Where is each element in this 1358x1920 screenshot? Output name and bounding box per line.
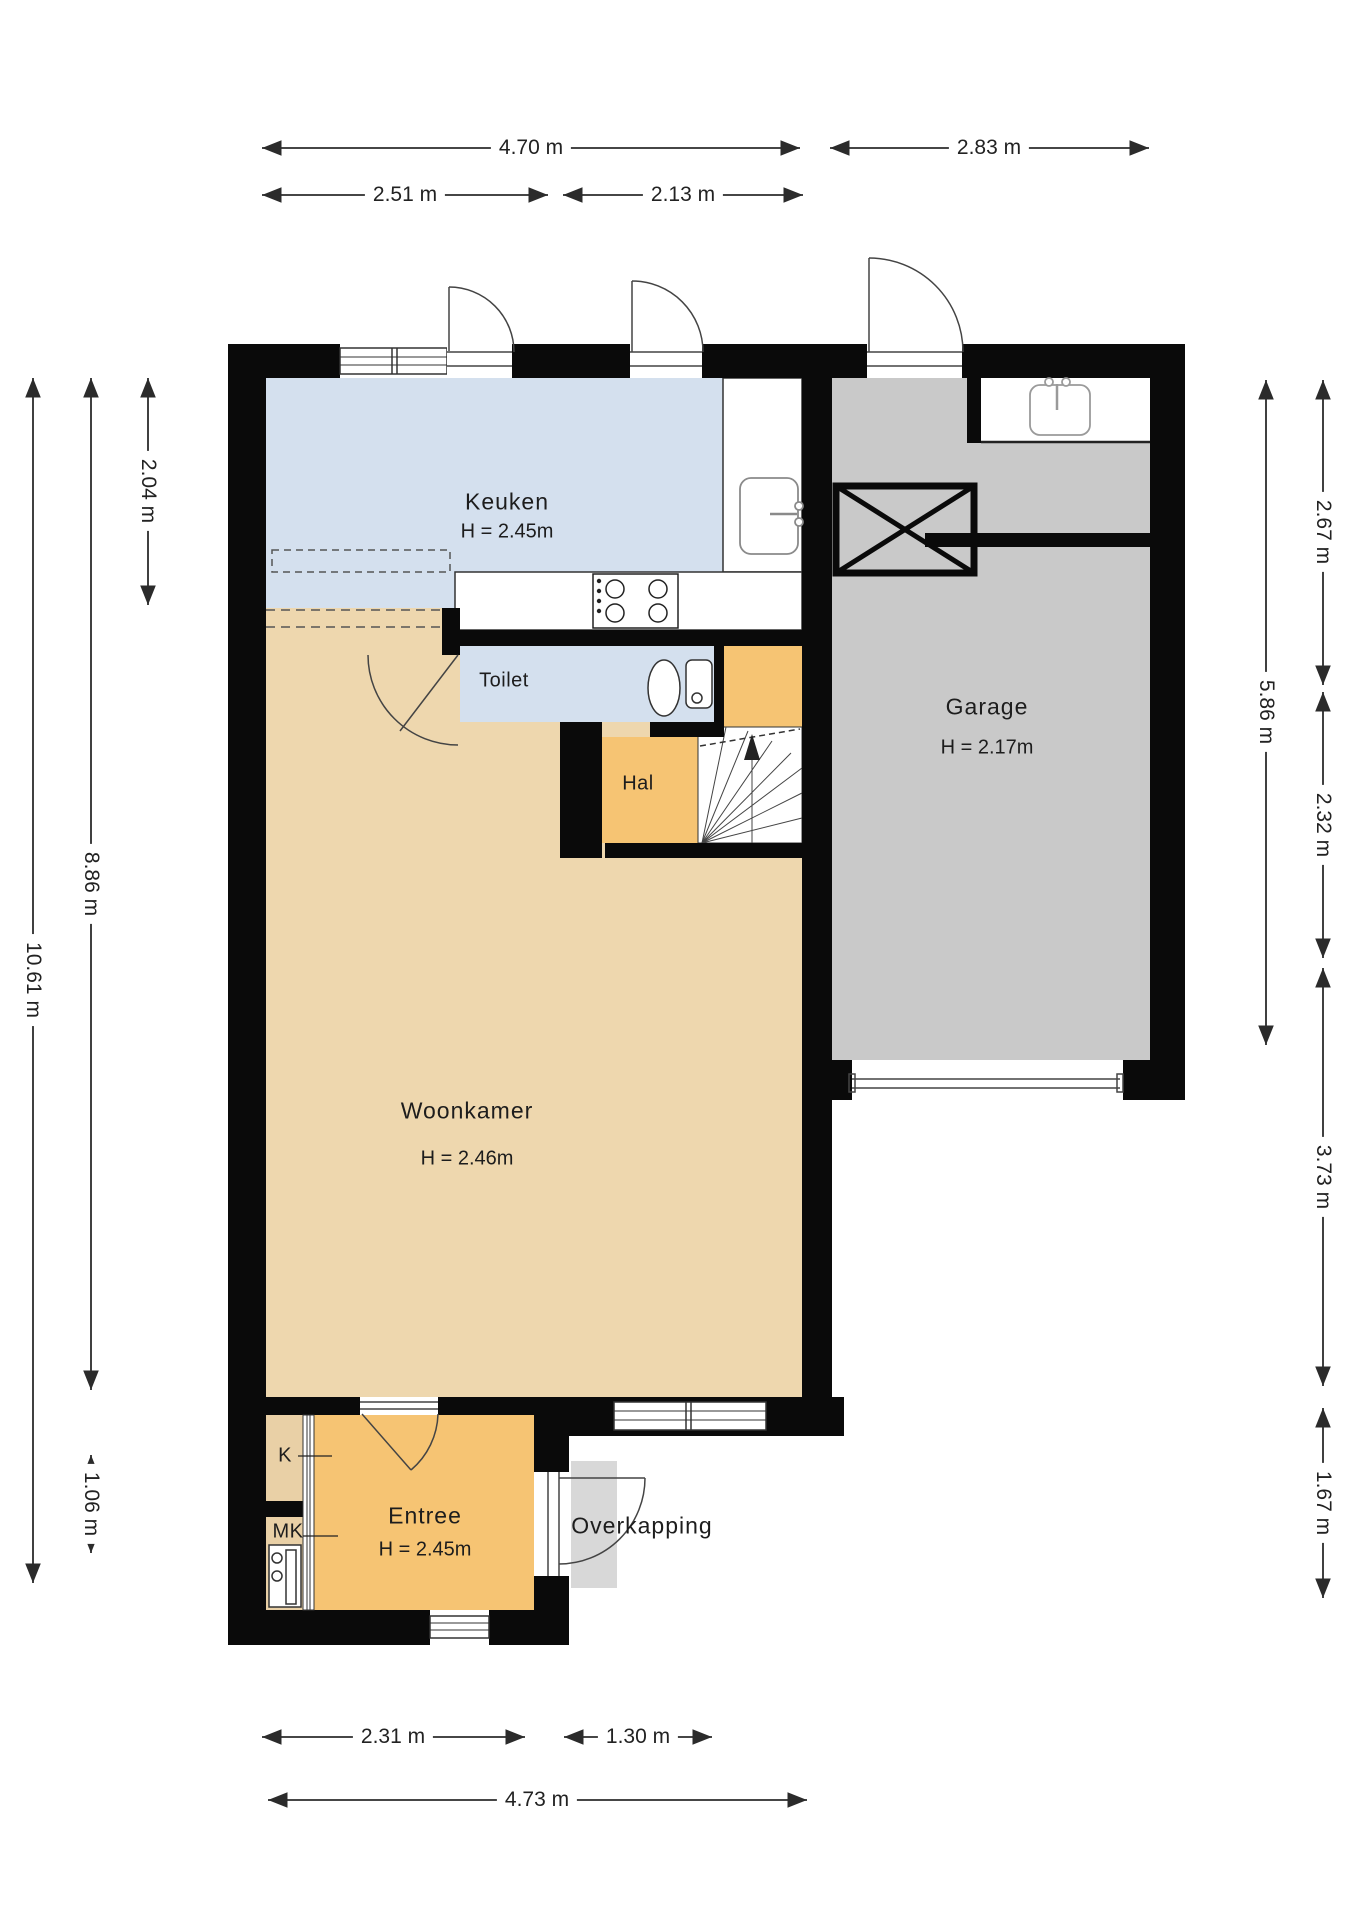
- kitchen-sink-icon: [740, 478, 803, 554]
- woonkamer-front-window: [614, 1402, 766, 1430]
- room-label-entree: Entree: [388, 1503, 462, 1530]
- dim-label-left-keuken: 2.04 m: [135, 451, 161, 531]
- room-label-kast: K: [278, 1445, 292, 1468]
- garage-sink-icon: [1030, 378, 1090, 435]
- room-label-hal: Hal: [622, 773, 654, 796]
- dim-label-right-2: 2.32 m: [1310, 785, 1336, 865]
- dim-label-top-sub1: 2.51 m: [365, 182, 445, 208]
- dim-label-top-sub2: 2.13 m: [643, 182, 723, 208]
- room-label-garage: Garage: [946, 694, 1029, 721]
- room-label-overkapping: Overkapping: [571, 1513, 712, 1540]
- keuken-window: [340, 348, 447, 374]
- kast-glass-partition: [303, 1415, 314, 1610]
- dim-label-right-4: 1.67 m: [1310, 1463, 1336, 1543]
- dim-label-left-woonkamer: 8.86 m: [78, 844, 104, 924]
- floorplan-canvas: Keuken H = 2.45m Garage H = 2.17m Toilet…: [0, 0, 1358, 1920]
- keuken-back-door-2: [630, 281, 703, 378]
- room-height-entree: H = 2.45m: [379, 1539, 472, 1562]
- dim-label-top-total: 4.70 m: [491, 135, 571, 161]
- dim-label-left-entree: 1.06 m: [78, 1464, 104, 1544]
- dim-label-bottom-overkapping: 1.30 m: [598, 1724, 678, 1750]
- room-height-keuken: H = 2.45m: [461, 521, 554, 544]
- dim-label-top-garage: 2.83 m: [949, 135, 1029, 161]
- dim-label-bottom-total: 4.73 m: [497, 1787, 577, 1813]
- entree-front-window: [430, 1616, 489, 1638]
- dim-label-right-3: 3.73 m: [1310, 1137, 1336, 1217]
- room-label-keuken: Keuken: [465, 489, 549, 516]
- room-height-garage: H = 2.17m: [941, 737, 1034, 760]
- dim-label-bottom-entree: 2.31 m: [353, 1724, 433, 1750]
- meterkast-fixture: [269, 1545, 301, 1607]
- dim-label-left-total: 10.61 m: [20, 934, 46, 1026]
- garage-overhead-door: [849, 1074, 1123, 1092]
- dim-label-right-1: 2.67 m: [1310, 492, 1336, 572]
- keuken-back-door: [447, 287, 514, 378]
- room-label-meterkast: MK: [273, 1521, 304, 1544]
- stove-icon: [593, 574, 678, 628]
- room-height-woonkamer: H = 2.46m: [421, 1148, 514, 1171]
- floorplan-drawing: [0, 0, 1358, 1920]
- stairs: [698, 727, 802, 843]
- room-label-toilet: Toilet: [479, 670, 529, 693]
- room-label-woonkamer: Woonkamer: [401, 1098, 534, 1125]
- dim-label-right-garage: 5.86 m: [1253, 672, 1279, 752]
- garage-back-door: [867, 258, 963, 378]
